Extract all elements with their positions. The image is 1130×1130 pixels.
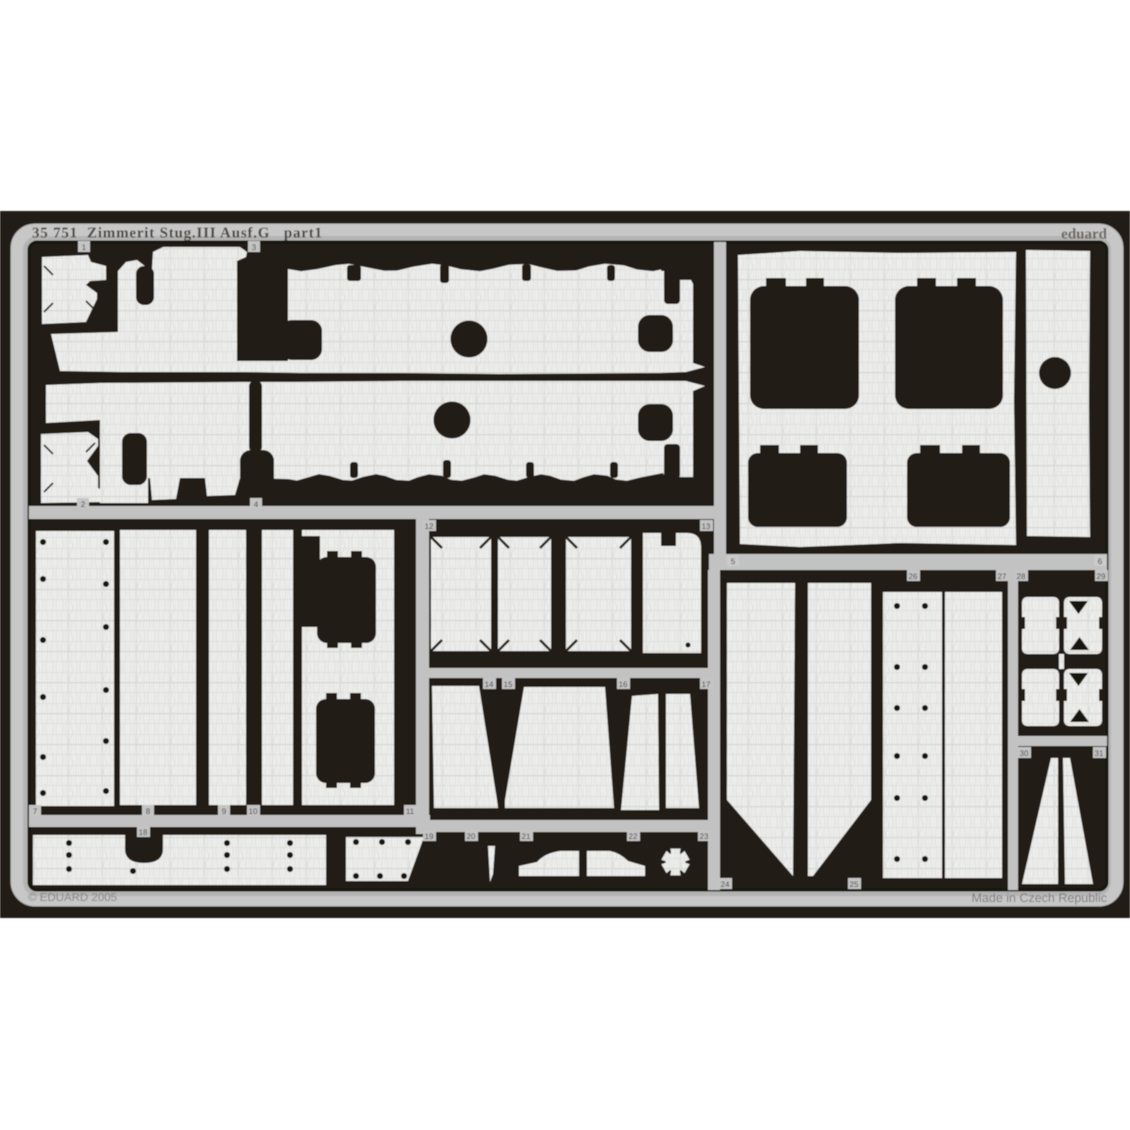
svg-text:15: 15 (504, 680, 513, 689)
svg-text:29: 29 (1097, 572, 1106, 581)
svg-text:21: 21 (522, 832, 531, 841)
svg-text:22: 22 (629, 832, 638, 841)
svg-text:31: 31 (1095, 749, 1104, 758)
svg-text:28: 28 (1017, 572, 1026, 581)
svg-text:6: 6 (1098, 557, 1103, 566)
svg-text:4: 4 (254, 500, 259, 509)
svg-text:27: 27 (998, 572, 1007, 581)
svg-text:13: 13 (702, 522, 711, 531)
svg-text:25: 25 (850, 880, 859, 889)
svg-text:23: 23 (700, 832, 709, 841)
svg-text:30: 30 (1020, 749, 1029, 758)
svg-text:9: 9 (222, 807, 227, 816)
svg-text:Made in Czech Republic: Made in Czech Republic (972, 891, 1108, 905)
svg-text:10: 10 (249, 807, 258, 816)
svg-text:1: 1 (82, 243, 87, 252)
svg-text:5: 5 (731, 557, 736, 566)
svg-text:2: 2 (81, 500, 86, 509)
svg-text:26: 26 (909, 572, 918, 581)
svg-text:14: 14 (485, 680, 494, 689)
svg-text:18: 18 (139, 828, 148, 837)
svg-text:16: 16 (619, 680, 628, 689)
svg-text:7: 7 (33, 807, 38, 816)
svg-text:11: 11 (406, 807, 415, 816)
svg-text:20: 20 (467, 832, 476, 841)
svg-text:19: 19 (425, 832, 434, 841)
svg-text:35 751 Zimmerit Stug.III Ausf: 35 751 Zimmerit Stug.III Ausf.G part1 (32, 226, 322, 242)
svg-text:24: 24 (721, 880, 730, 889)
svg-text:8: 8 (146, 807, 151, 816)
svg-text:© EDUARD 2005: © EDUARD 2005 (28, 892, 117, 904)
svg-text:3: 3 (252, 243, 257, 252)
svg-text:17: 17 (702, 680, 711, 689)
svg-text:12: 12 (425, 522, 434, 531)
svg-text:eduard: eduard (1061, 227, 1108, 243)
